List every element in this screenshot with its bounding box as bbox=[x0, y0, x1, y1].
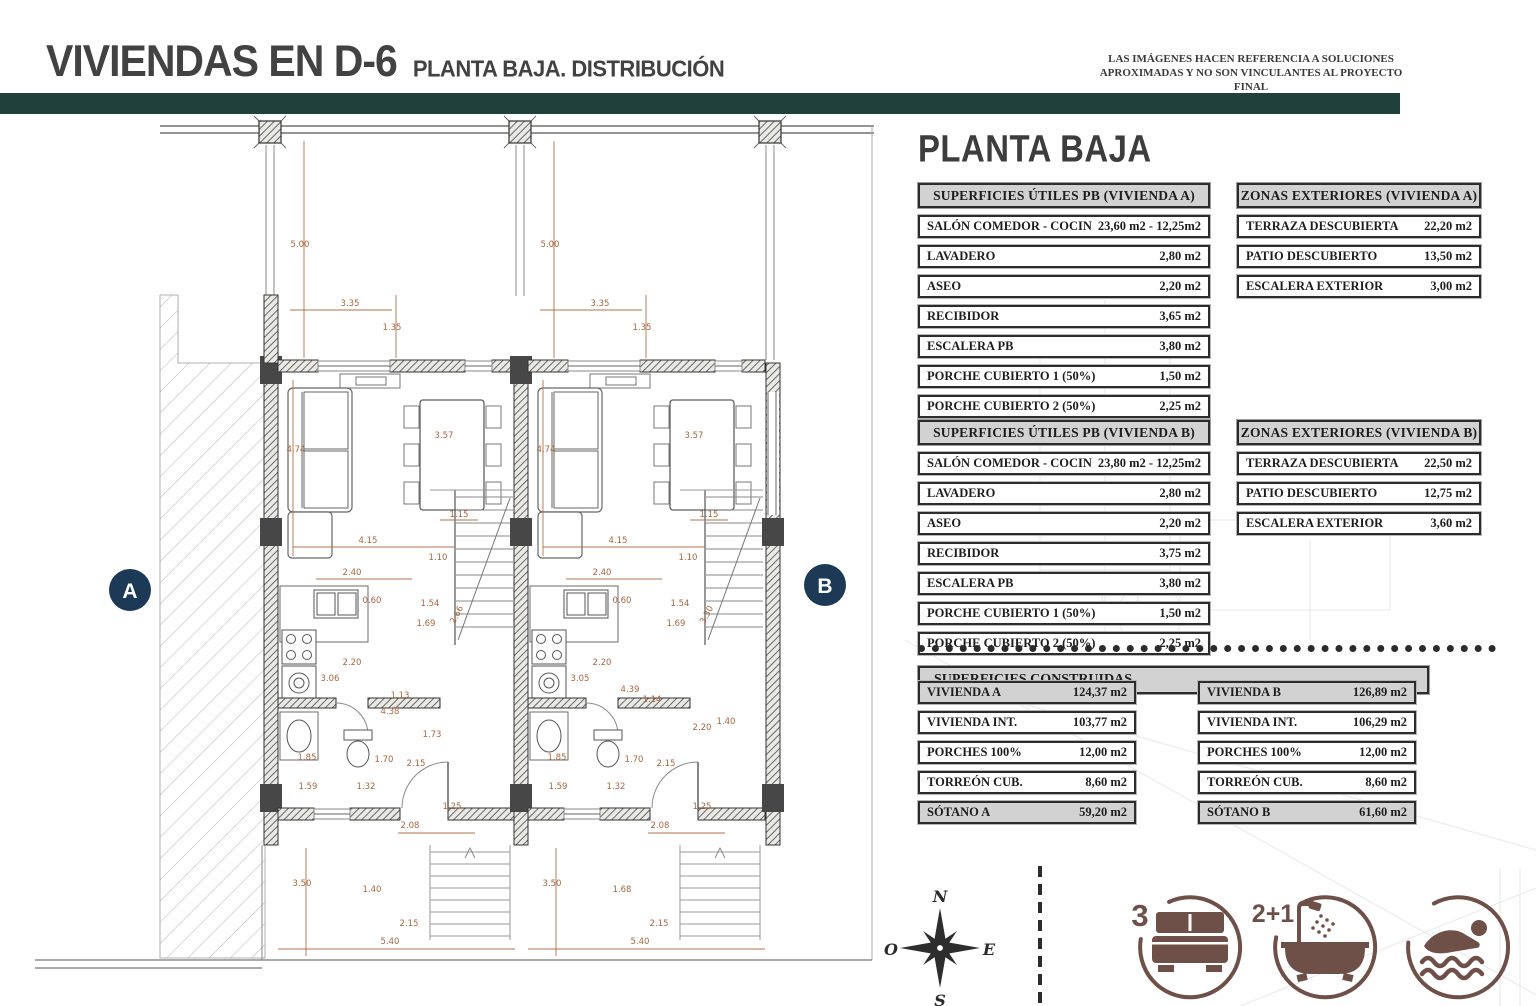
table-title: ZONAS EXTERIORES (VIVIENDA B) bbox=[1241, 425, 1477, 441]
dimension-label: 2.08 bbox=[651, 821, 670, 831]
dimension-label: 1.54 bbox=[421, 599, 440, 609]
row-label: ESCALERA EXTERIOR bbox=[1246, 279, 1383, 294]
dimension-label: 1.25 bbox=[693, 802, 712, 812]
table-row: LAVADERO2,80 m2 bbox=[918, 245, 1210, 268]
bed-icon bbox=[1152, 912, 1228, 972]
dimension-label: 2.15 bbox=[407, 759, 426, 769]
row-value: 23,60 m2 - 12,25m2 bbox=[1098, 219, 1201, 234]
table-row: ESCALERA PB3,80 m2 bbox=[918, 335, 1210, 358]
table-row: RECIBIDOR3,75 m2 bbox=[918, 542, 1210, 565]
table-row: PORCHE CUBIERTO 1 (50%)1,50 m2 bbox=[918, 602, 1210, 625]
dimension-label: 1.69 bbox=[417, 619, 436, 629]
row-label: ESCALERA PB bbox=[927, 339, 1013, 354]
dimension-label: 4.15 bbox=[609, 536, 628, 546]
row-label: SALÓN COMEDOR - COCINA bbox=[927, 219, 1092, 234]
row-label: PORCHES 100% bbox=[1207, 745, 1302, 760]
table-row: ESCALERA EXTERIOR3,00 m2 bbox=[1237, 275, 1481, 298]
hatch-region bbox=[160, 295, 265, 958]
dimension-label: 2.20 bbox=[693, 723, 712, 733]
marker-vivienda-b: B bbox=[804, 564, 846, 606]
table-title: SUPERFICIES ÚTILES PB (VIVIENDA A) bbox=[933, 188, 1195, 204]
row-value: 22,20 m2 bbox=[1424, 219, 1472, 234]
table-row: TERRAZA DESCUBIERTA22,20 m2 bbox=[1237, 215, 1481, 238]
dimension-label: 1.40 bbox=[717, 717, 736, 727]
table-row: PATIO DESCUBIERTO12,75 m2 bbox=[1237, 482, 1481, 505]
panel-heading: PLANTA BAJA bbox=[918, 128, 1152, 171]
table-zonas-exteriores-a: ZONAS EXTERIORES (VIVIENDA A) TERRAZA DE… bbox=[1237, 183, 1481, 298]
dimension-label: 2.40 bbox=[593, 568, 612, 578]
table-row: SALÓN COMEDOR - COCINA23,80 m2 - 12,25m2 bbox=[918, 452, 1210, 475]
marker-vivienda-a: A bbox=[109, 569, 151, 611]
table-row: TORREÓN CUB.8,60 m2 bbox=[1198, 771, 1416, 794]
dimension-label: 1.54 bbox=[671, 599, 690, 609]
pool-feature bbox=[1400, 889, 1516, 1005]
dimension-label: 1.68 bbox=[613, 885, 632, 895]
construidas-column-a: VIVIENDA A124,37 m2VIVIENDA INT.103,77 m… bbox=[918, 674, 1136, 824]
row-value: 106,29 m2 bbox=[1353, 715, 1407, 730]
dimension-label: 0.60 bbox=[363, 596, 382, 606]
row-label: ESCALERA EXTERIOR bbox=[1246, 516, 1383, 531]
row-value: 12,00 m2 bbox=[1359, 745, 1407, 760]
dimension-label: 3.35 bbox=[591, 299, 610, 309]
row-label: RECIBIDOR bbox=[927, 309, 999, 324]
row-value: 3,60 m2 bbox=[1430, 516, 1472, 531]
dimension-label: 2.15 bbox=[657, 759, 676, 769]
table-row: TERRAZA DESCUBIERTA22,50 m2 bbox=[1237, 452, 1481, 475]
row-value: 2,25 m2 bbox=[1159, 399, 1201, 414]
dimension-label: 1.35 bbox=[633, 323, 652, 333]
row-value: 3,75 m2 bbox=[1159, 546, 1201, 561]
dimension-label: 5.40 bbox=[631, 937, 650, 947]
table-title: SUPERFICIES ÚTILES PB (VIVIENDA B) bbox=[933, 425, 1195, 441]
table-zonas-exteriores-b: ZONAS EXTERIORES (VIVIENDA B) TERRAZA DE… bbox=[1237, 420, 1481, 535]
dimension-label: 1.59 bbox=[299, 782, 318, 792]
table-superficies-utiles-a: SUPERFICIES ÚTILES PB (VIVIENDA A) SALÓN… bbox=[918, 183, 1210, 418]
table-row: SÓTANO B61,60 m2 bbox=[1198, 801, 1416, 824]
row-label: RECIBIDOR bbox=[927, 546, 999, 561]
row-value: 59,20 m2 bbox=[1079, 805, 1127, 820]
dimension-label: 2.66 bbox=[448, 604, 466, 625]
footer-graphics: N E S O 3 bbox=[880, 860, 1536, 1006]
row-label: PATIO DESCUBIERTO bbox=[1246, 249, 1377, 264]
row-label: PORCHE CUBIERTO 1 (50%) bbox=[927, 606, 1095, 621]
dimension-label: 3.50 bbox=[293, 879, 312, 889]
row-label: TERRAZA DESCUBIERTA bbox=[1246, 219, 1399, 234]
dimension-label: 1.25 bbox=[443, 802, 462, 812]
row-value: 103,77 m2 bbox=[1073, 715, 1127, 730]
table-row: RECIBIDOR3,65 m2 bbox=[918, 305, 1210, 328]
dimension-label: 1.13 bbox=[391, 691, 410, 701]
compass-north-label: N bbox=[932, 887, 949, 906]
dimension-label: 3.35 bbox=[341, 299, 360, 309]
dimension-label: 1.59 bbox=[549, 782, 568, 792]
row-label: PORCHE CUBIERTO 2 (50%) bbox=[927, 399, 1095, 414]
dimension-label: 1.69 bbox=[667, 619, 686, 629]
dimension-label: 1.70 bbox=[625, 755, 644, 765]
table-row: ASEO2,20 m2 bbox=[918, 512, 1210, 535]
row-value: 1,50 m2 bbox=[1159, 606, 1201, 621]
table-row: VIVIENDA INT.103,77 m2 bbox=[918, 711, 1136, 734]
dimension-label: 3.06 bbox=[321, 674, 340, 684]
table-row: PORCHES 100%12,00 m2 bbox=[1198, 741, 1416, 764]
compass-rose: N E S O bbox=[884, 887, 996, 1006]
row-label: ESCALERA PB bbox=[927, 576, 1013, 591]
row-value: 12,75 m2 bbox=[1424, 486, 1472, 501]
dimension-label: 1.15 bbox=[700, 510, 719, 520]
row-label: LAVADERO bbox=[927, 249, 995, 264]
dimension-label: 5.00 bbox=[291, 240, 310, 250]
marker-b-label: B bbox=[817, 575, 832, 598]
row-value: 3,80 m2 bbox=[1159, 576, 1201, 591]
bathrooms-feature: 2+1 bbox=[1252, 894, 1379, 1001]
table-row: SALÓN COMEDOR - COCINA23,60 m2 - 12,25m2 bbox=[918, 215, 1210, 238]
dimension-label: 1.32 bbox=[607, 782, 626, 792]
dimension-label: 2.20 bbox=[343, 658, 362, 668]
table-row: PORCHE CUBIERTO 2 (50%)2,25 m2 bbox=[918, 395, 1210, 418]
row-value: 22,50 m2 bbox=[1424, 456, 1472, 471]
dimension-label: 1.15 bbox=[450, 510, 469, 520]
dimension-label: 4.74 bbox=[287, 445, 306, 455]
row-label: SÓTANO B bbox=[1207, 805, 1270, 820]
table-header: ZONAS EXTERIORES (VIVIENDA A) bbox=[1237, 183, 1481, 208]
dimension-label: 1.10 bbox=[679, 553, 698, 563]
row-label: PATIO DESCUBIERTO bbox=[1246, 486, 1377, 501]
table-header: ZONAS EXTERIORES (VIVIENDA B) bbox=[1237, 420, 1481, 445]
row-value: 124,37 m2 bbox=[1073, 685, 1127, 700]
dimension-label: 1.14 bbox=[643, 695, 662, 705]
row-value: 2,20 m2 bbox=[1159, 279, 1201, 294]
dimension-label: 4.38 bbox=[381, 707, 400, 717]
floor-plan: 5.003.351.354.743.571.154.151.102.400.60… bbox=[0, 0, 890, 1006]
dimension-label: 1.85 bbox=[548, 753, 567, 763]
row-value: 2,80 m2 bbox=[1159, 249, 1201, 264]
row-label: SALÓN COMEDOR - COCINA bbox=[927, 456, 1092, 471]
compass-south-label: S bbox=[934, 991, 946, 1006]
row-value: 61,60 m2 bbox=[1359, 805, 1407, 820]
row-value: 13,50 m2 bbox=[1424, 249, 1472, 264]
row-label: VIVIENDA A bbox=[927, 685, 1001, 700]
dimension-label: 2.40 bbox=[343, 568, 362, 578]
table-row: PATIO DESCUBIERTO13,50 m2 bbox=[1237, 245, 1481, 268]
row-label: PORCHE CUBIERTO 1 (50%) bbox=[927, 369, 1095, 384]
bathrooms-count: 2+1 bbox=[1252, 900, 1295, 928]
dimension-label: 2.20 bbox=[593, 658, 612, 668]
row-value: 2,80 m2 bbox=[1159, 486, 1201, 501]
right-outer-wall bbox=[754, 116, 786, 845]
row-label: SÓTANO A bbox=[927, 805, 990, 820]
dimension-label: 4.39 bbox=[621, 685, 640, 695]
dimension-label: 1.35 bbox=[383, 323, 402, 333]
row-value: 12,00 m2 bbox=[1079, 745, 1127, 760]
row-label: TORREÓN CUB. bbox=[1207, 775, 1303, 790]
dimension-label: 1.32 bbox=[357, 782, 376, 792]
construidas-column-b: VIVIENDA B126,89 m2VIVIENDA INT.106,29 m… bbox=[1198, 674, 1416, 824]
dimension-label: 5.40 bbox=[381, 937, 400, 947]
table-row: ESCALERA PB3,80 m2 bbox=[918, 572, 1210, 595]
table-title: ZONAS EXTERIORES (VIVIENDA A) bbox=[1241, 188, 1477, 204]
dimension-label: 3.30 bbox=[698, 604, 716, 625]
row-label: VIVIENDA INT. bbox=[927, 715, 1017, 730]
row-value: 8,60 m2 bbox=[1085, 775, 1127, 790]
dimension-label: 3.05 bbox=[571, 674, 590, 684]
dimension-label: 2.08 bbox=[401, 821, 420, 831]
table-row: LAVADERO2,80 m2 bbox=[918, 482, 1210, 505]
compass-west-label: O bbox=[884, 940, 898, 959]
table-row: VIVIENDA INT.106,29 m2 bbox=[1198, 711, 1416, 734]
dotted-separator bbox=[918, 645, 1496, 652]
row-value: 8,60 m2 bbox=[1365, 775, 1407, 790]
dimension-label: 1.85 bbox=[298, 753, 317, 763]
dimension-label: 3.50 bbox=[543, 879, 562, 889]
compass-east-label: E bbox=[982, 940, 996, 959]
row-label: LAVADERO bbox=[927, 486, 995, 501]
dimension-label: 3.57 bbox=[685, 431, 704, 441]
row-value: 1,50 m2 bbox=[1159, 369, 1201, 384]
table-header: SUPERFICIES ÚTILES PB (VIVIENDA B) bbox=[918, 420, 1210, 445]
row-label: ASEO bbox=[927, 516, 961, 531]
row-value: 23,80 m2 - 12,25m2 bbox=[1098, 456, 1201, 471]
row-value: 2,20 m2 bbox=[1159, 516, 1201, 531]
dimension-label: 1.70 bbox=[375, 755, 394, 765]
row-label: VIVIENDA INT. bbox=[1207, 715, 1297, 730]
dimension-label: 4.15 bbox=[359, 536, 378, 546]
marker-a-label: A bbox=[122, 580, 137, 603]
row-value: 3,65 m2 bbox=[1159, 309, 1201, 324]
row-label: TERRAZA DESCUBIERTA bbox=[1246, 456, 1399, 471]
row-label: PORCHES 100% bbox=[927, 745, 1022, 760]
row-value: 126,89 m2 bbox=[1353, 685, 1407, 700]
table-row: PORCHES 100%12,00 m2 bbox=[918, 741, 1136, 764]
dimension-label: 2.15 bbox=[400, 919, 419, 929]
page: VIVIENDAS EN D-6 PLANTA BAJA. DISTRIBUCI… bbox=[0, 0, 1536, 1006]
row-label: TORREÓN CUB. bbox=[927, 775, 1023, 790]
dimension-label: 4.74 bbox=[537, 445, 556, 455]
table-superficies-utiles-b: SUPERFICIES ÚTILES PB (VIVIENDA B) SALÓN… bbox=[918, 420, 1210, 655]
dimension-label: 2.15 bbox=[650, 919, 669, 929]
row-value: 3,80 m2 bbox=[1159, 339, 1201, 354]
table-row: ESCALERA EXTERIOR3,60 m2 bbox=[1237, 512, 1481, 535]
dimension-label: 0.60 bbox=[613, 596, 632, 606]
table-row: VIVIENDA B126,89 m2 bbox=[1198, 681, 1416, 704]
table-row: TORREÓN CUB.8,60 m2 bbox=[918, 771, 1136, 794]
swimmer-icon bbox=[1422, 920, 1487, 978]
dimension-label: 5.00 bbox=[541, 240, 560, 250]
table-row: SÓTANO A59,20 m2 bbox=[918, 801, 1136, 824]
table-row: VIVIENDA A124,37 m2 bbox=[918, 681, 1136, 704]
table-row: PORCHE CUBIERTO 1 (50%)1,50 m2 bbox=[918, 365, 1210, 388]
dimension-label: 1.10 bbox=[429, 553, 448, 563]
dimension-label: 1.40 bbox=[363, 885, 382, 895]
row-label: VIVIENDA B bbox=[1207, 685, 1281, 700]
table-header: SUPERFICIES ÚTILES PB (VIVIENDA A) bbox=[918, 183, 1210, 208]
dimension-label: 3.57 bbox=[435, 431, 454, 441]
table-row: ASEO2,20 m2 bbox=[918, 275, 1210, 298]
row-value: 3,00 m2 bbox=[1430, 279, 1472, 294]
dimension-label: 1.73 bbox=[423, 730, 442, 740]
row-label: ASEO bbox=[927, 279, 961, 294]
bedrooms-feature: 3 bbox=[1131, 892, 1245, 1002]
bedrooms-count: 3 bbox=[1131, 898, 1148, 933]
